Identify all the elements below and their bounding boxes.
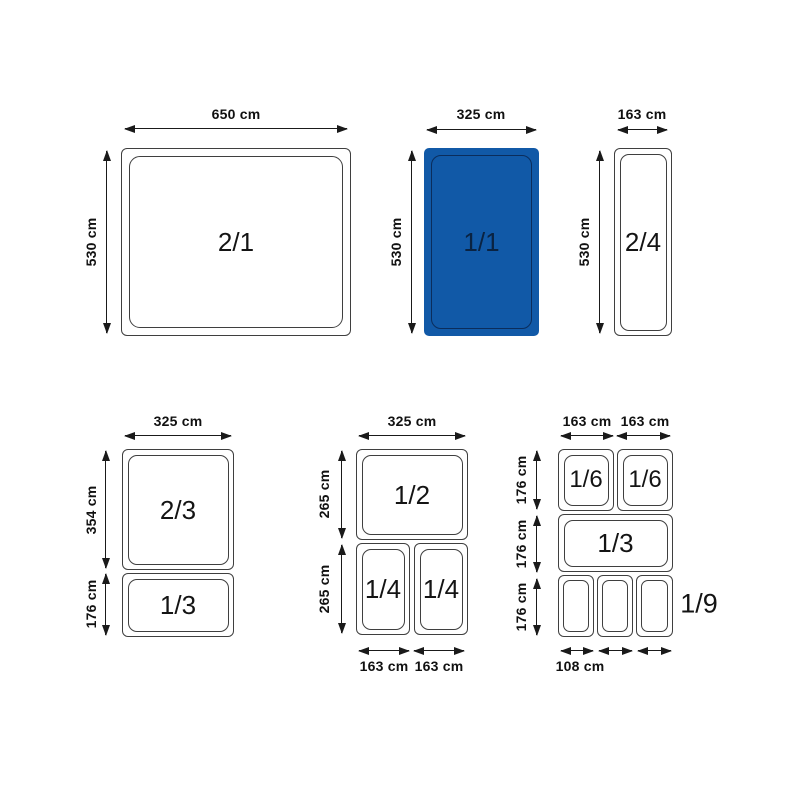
dim-label-height-2-1: 530 cm <box>83 218 99 267</box>
bottom-arrow-1-4-a <box>359 650 409 651</box>
dim-label-height-1-4: 265 cm <box>316 565 332 614</box>
dim-label-width-1-2: 325 cm <box>388 413 437 429</box>
dim-label-height-1-3a: 176 cm <box>83 580 99 629</box>
pan-2-4-label: 2/4 <box>620 154 667 331</box>
pan-1-3-b-label: 1/3 <box>564 520 668 567</box>
width-arrow-2-3 <box>125 435 231 436</box>
pan-1-6-a-label: 1/6 <box>564 455 609 506</box>
pan-1-9-a-inner <box>563 580 589 632</box>
dim-label-height-1-9: 176 cm <box>513 583 529 632</box>
width-arrow-2-1 <box>125 128 347 129</box>
pan-1-4-a[interactable]: 1/4 <box>356 543 410 635</box>
pan-2-4[interactable]: 2/4 <box>614 148 672 336</box>
dim-label-bottom-1-4-a: 163 cm <box>360 658 409 674</box>
pan-2-3[interactable]: 2/3 <box>122 449 234 570</box>
pan-1-9-b[interactable] <box>597 575 633 637</box>
pan-1-6-a[interactable]: 1/6 <box>558 449 614 511</box>
pan-1-4-b-label: 1/4 <box>420 549 463 630</box>
gn-pan-size-diagram: 650 cm 530 cm 2/1 325 cm 530 cm 1/1 163 … <box>0 0 800 800</box>
dim-label-top-1-6-b: 163 cm <box>621 413 670 429</box>
bottom-arrow-1-9-a <box>561 650 593 651</box>
pan-1-1-selected[interactable]: 1/1 <box>424 148 539 336</box>
bottom-arrow-1-9-c <box>638 650 671 651</box>
dim-label-height-1-1: 530 cm <box>388 218 404 267</box>
dim-label-top-1-6-a: 163 cm <box>563 413 612 429</box>
top-arrow-1-6-b <box>617 435 670 436</box>
pan-1-1-label: 1/1 <box>431 155 532 329</box>
height-arrow-1-2 <box>341 451 342 538</box>
dim-label-height-2-3: 354 cm <box>83 486 99 535</box>
height-arrow-1-4 <box>341 545 342 633</box>
dim-label-height-1-3b: 176 cm <box>513 520 529 569</box>
pan-1-6-b-label: 1/6 <box>623 455 668 506</box>
width-arrow-2-4 <box>618 129 667 130</box>
dim-label-width-2-4: 163 cm <box>618 106 667 122</box>
dim-label-height-2-4: 530 cm <box>576 218 592 267</box>
pan-1-2-label: 1/2 <box>362 455 463 535</box>
dim-label-height-1-6: 176 cm <box>513 456 529 505</box>
pan-1-9-c-inner <box>641 580 668 632</box>
pan-1-9-a[interactable] <box>558 575 594 637</box>
height-arrow-2-3 <box>105 451 106 568</box>
pan-1-9-b-inner <box>602 580 628 632</box>
height-arrow-1-3a <box>105 574 106 635</box>
dim-label-width-1-1: 325 cm <box>457 106 506 122</box>
pan-1-2[interactable]: 1/2 <box>356 449 468 540</box>
width-arrow-1-2 <box>359 435 465 436</box>
height-arrow-1-6 <box>536 451 537 509</box>
pan-2-3-label: 2/3 <box>128 455 229 565</box>
dim-label-bottom-1-9: 108 cm <box>556 658 605 674</box>
pan-1-3-a-label: 1/3 <box>128 579 229 632</box>
top-arrow-1-6-a <box>561 435 613 436</box>
width-arrow-1-1 <box>427 129 536 130</box>
height-arrow-2-1 <box>106 151 107 333</box>
pan-1-4-b[interactable]: 1/4 <box>414 543 468 635</box>
dim-label-height-1-2: 265 cm <box>316 470 332 519</box>
bottom-arrow-1-9-b <box>599 650 632 651</box>
pan-1-4-a-label: 1/4 <box>362 549 405 630</box>
pan-2-1-label: 2/1 <box>129 156 343 328</box>
dim-label-bottom-1-4-b: 163 cm <box>415 658 464 674</box>
height-arrow-2-4 <box>599 151 600 333</box>
dim-label-width-2-3: 325 cm <box>154 413 203 429</box>
pan-1-3-a[interactable]: 1/3 <box>122 573 234 637</box>
height-arrow-1-1 <box>411 151 412 333</box>
bottom-arrow-1-4-b <box>414 650 464 651</box>
pan-1-9-c[interactable] <box>636 575 673 637</box>
height-arrow-1-3b <box>536 516 537 572</box>
pan-1-3-b[interactable]: 1/3 <box>558 514 673 572</box>
pan-2-1[interactable]: 2/1 <box>121 148 351 336</box>
pan-1-6-b[interactable]: 1/6 <box>617 449 673 511</box>
height-arrow-1-9 <box>536 579 537 635</box>
dim-label-width-2-1: 650 cm <box>212 106 261 122</box>
pan-1-9-label: 1/9 <box>680 589 718 620</box>
